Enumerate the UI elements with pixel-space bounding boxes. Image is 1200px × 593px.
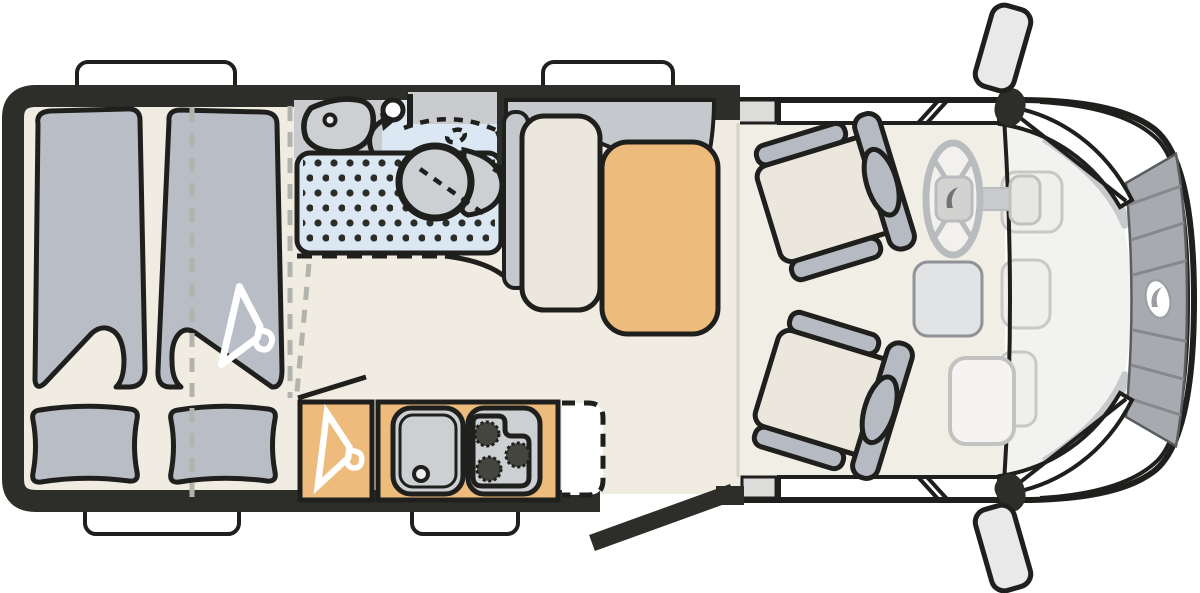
cab-door-window-top xyxy=(779,101,999,123)
entry-door-open xyxy=(592,486,744,543)
wall-end-cap xyxy=(712,100,740,120)
lounge xyxy=(504,100,718,334)
cab-door-window-bottom xyxy=(779,477,999,499)
cab-door-frame-top xyxy=(736,100,776,123)
mirror-glass-top xyxy=(972,2,1034,94)
sink-drain xyxy=(414,467,428,481)
pillow-right xyxy=(171,406,276,482)
steering-dash-mount xyxy=(1010,176,1040,224)
floorplan-canvas xyxy=(0,0,1200,593)
dashboard-tray xyxy=(950,358,1014,444)
steering-hub xyxy=(936,177,972,221)
bench-seat xyxy=(522,116,600,310)
cab-door-frame-bottom xyxy=(742,477,776,498)
kitchen xyxy=(300,402,603,500)
floorplan-svg xyxy=(0,0,1200,593)
optional-unit-dashed xyxy=(562,403,603,495)
center-console xyxy=(914,262,982,336)
grille xyxy=(1126,154,1189,446)
dinette-table xyxy=(602,142,718,334)
wardrobe xyxy=(300,402,372,500)
washbasin-drain xyxy=(325,115,336,126)
entry-door-panel xyxy=(592,492,733,543)
washbasin xyxy=(304,99,373,152)
burner-1 xyxy=(475,422,499,446)
mirror-glass-bottom xyxy=(972,502,1034,593)
pillow-left xyxy=(33,406,138,482)
burner-3 xyxy=(506,443,530,467)
burner-2 xyxy=(477,457,501,481)
